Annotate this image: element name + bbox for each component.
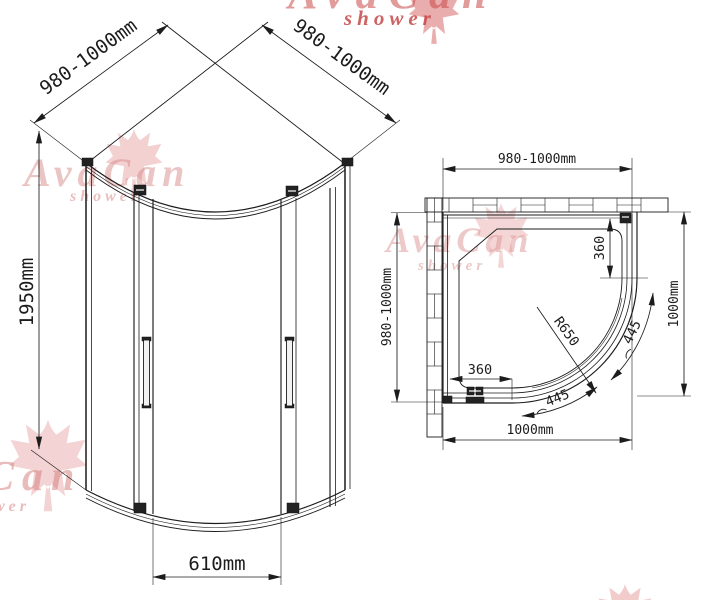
watermark-sub-partial: wer bbox=[0, 498, 30, 515]
watermark-sub: shower bbox=[343, 6, 436, 30]
extension-line bbox=[345, 120, 400, 163]
watermark-left: AvaCan shower bbox=[21, 129, 190, 205]
plan-roller-top-right bbox=[620, 213, 631, 223]
door-roller-bottom-right bbox=[287, 503, 299, 513]
shower-enclosure-drawing: AvaCan shower AvaCan shower AvaCan showe… bbox=[0, 0, 705, 600]
plan-left-dimension: 980-1000mm bbox=[380, 268, 395, 346]
plan-view: 980-1000mm 980-1000mm 1000mm 1000mm 360 … bbox=[380, 152, 691, 450]
bottom-rail-inner bbox=[86, 498, 345, 532]
bottom-rail-outer bbox=[86, 490, 345, 524]
plan-bottom-dimension: 1000mm bbox=[507, 423, 554, 438]
door-handle-right bbox=[285, 337, 294, 408]
plan-360-bottom-dimension: 360 bbox=[468, 362, 492, 378]
bottom-rail-mid bbox=[86, 494, 345, 528]
plan-right-dimension: 1000mm bbox=[667, 280, 682, 327]
corner-cap bbox=[342, 158, 353, 166]
plan-top-dimension: 980-1000mm bbox=[498, 152, 576, 167]
iso-width-left-dimension: 980-1000mm bbox=[36, 15, 141, 100]
watermark-brand-partial: Can bbox=[0, 454, 82, 500]
iso-opening-dimension: 610mm bbox=[188, 553, 245, 575]
watermark-bottom-left: Can wer bbox=[0, 420, 87, 516]
watermark-brand: AvaCan bbox=[384, 220, 533, 260]
door-handle-left bbox=[142, 337, 151, 408]
iso-height-dimension: 1950mm bbox=[16, 258, 38, 327]
door-roller-bottom-left bbox=[134, 503, 146, 513]
watermark-bottom-right bbox=[597, 584, 652, 600]
plan-360-right-dimension: 360 bbox=[592, 236, 608, 260]
door-end-stop bbox=[443, 396, 452, 403]
wall-top bbox=[425, 198, 668, 212]
plan-roller-bottom-left bbox=[466, 387, 484, 403]
technical-drawing-page: AvaCan shower AvaCan shower AvaCan showe… bbox=[0, 0, 705, 600]
maple-leaf-icon bbox=[597, 584, 652, 600]
plan-radius-dimension: R650 bbox=[550, 314, 582, 350]
